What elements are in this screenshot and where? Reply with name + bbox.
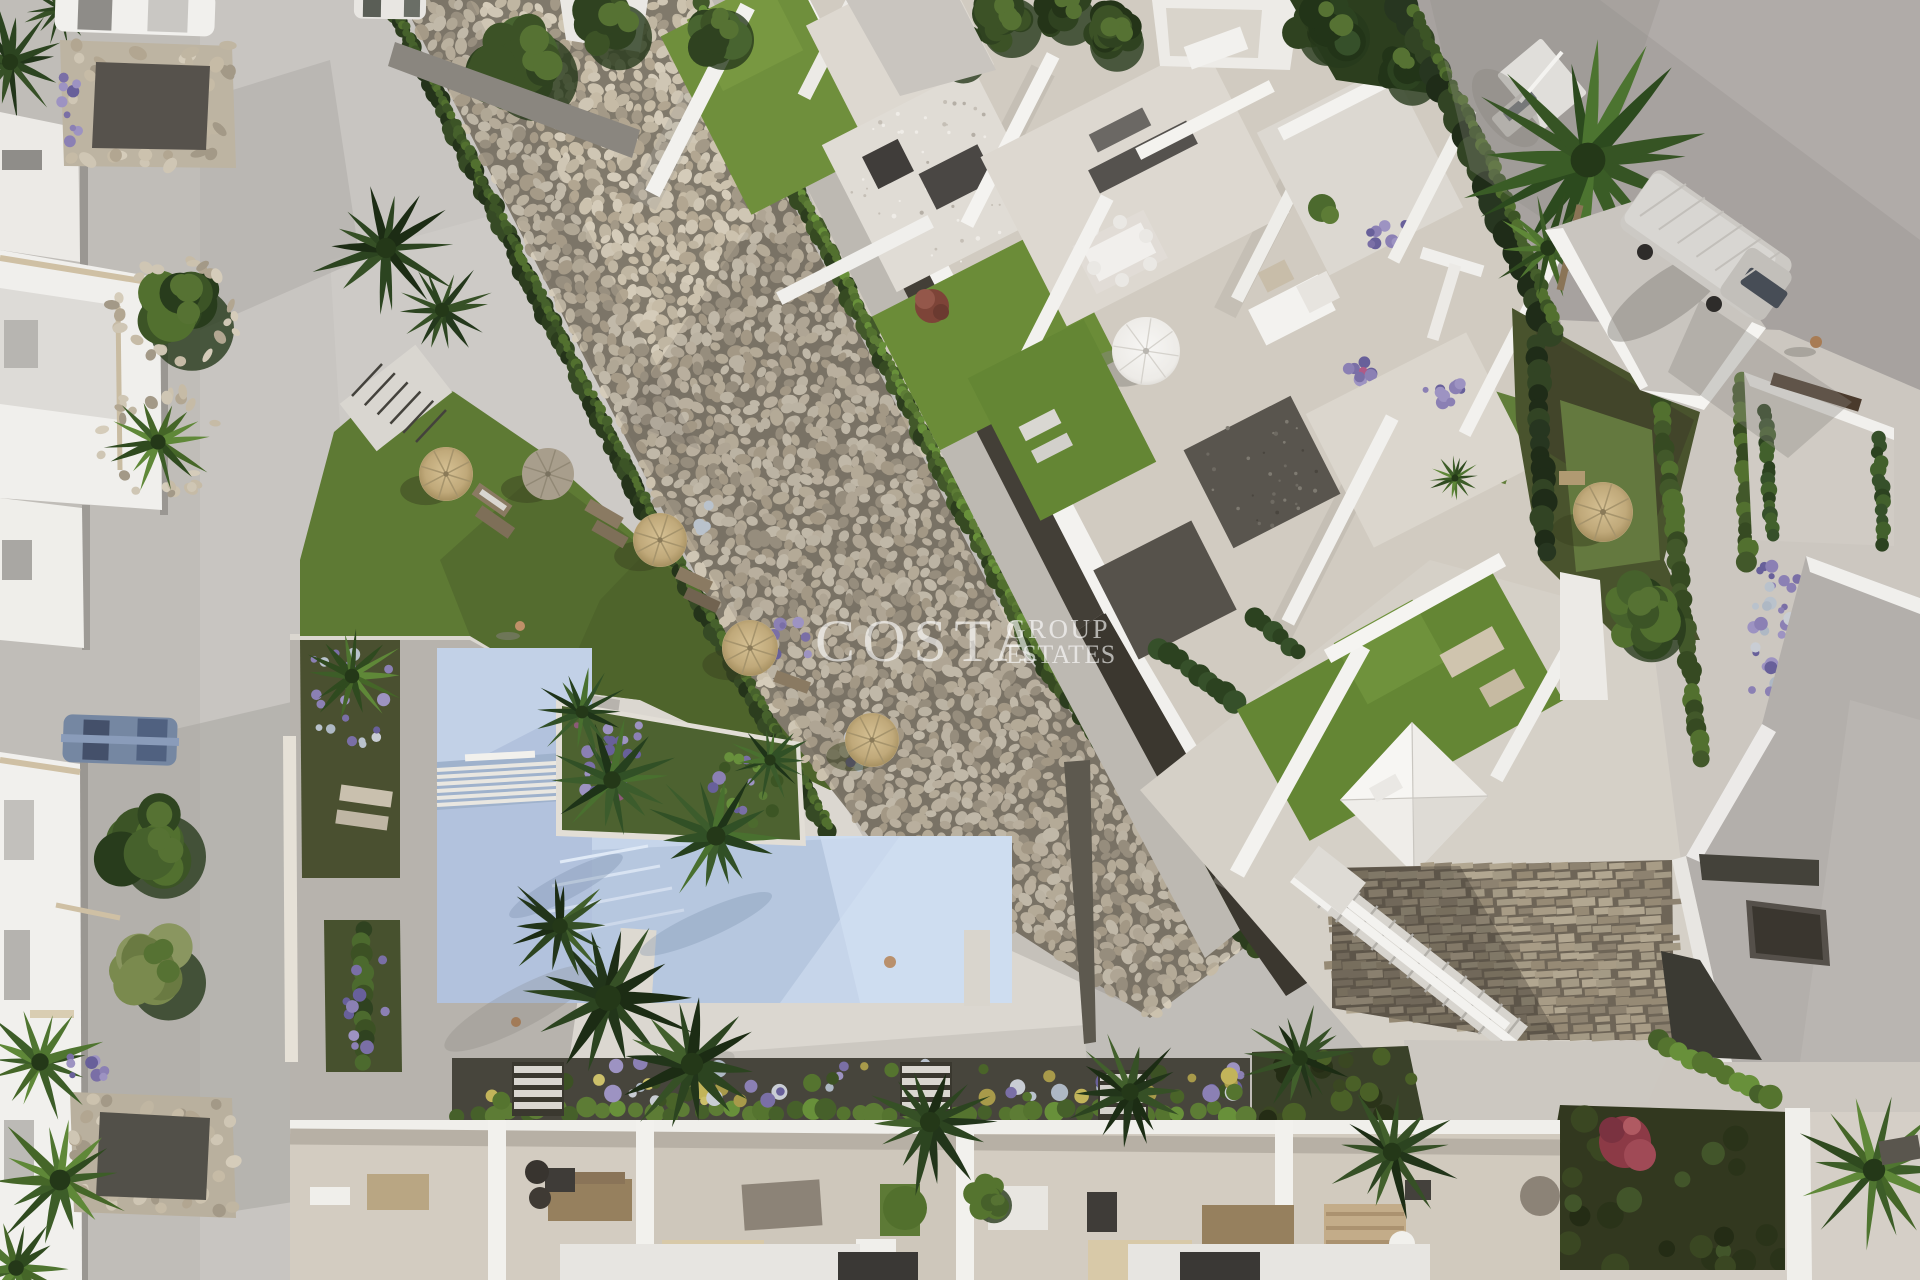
- svg-text:ESTATES: ESTATES: [1006, 640, 1116, 669]
